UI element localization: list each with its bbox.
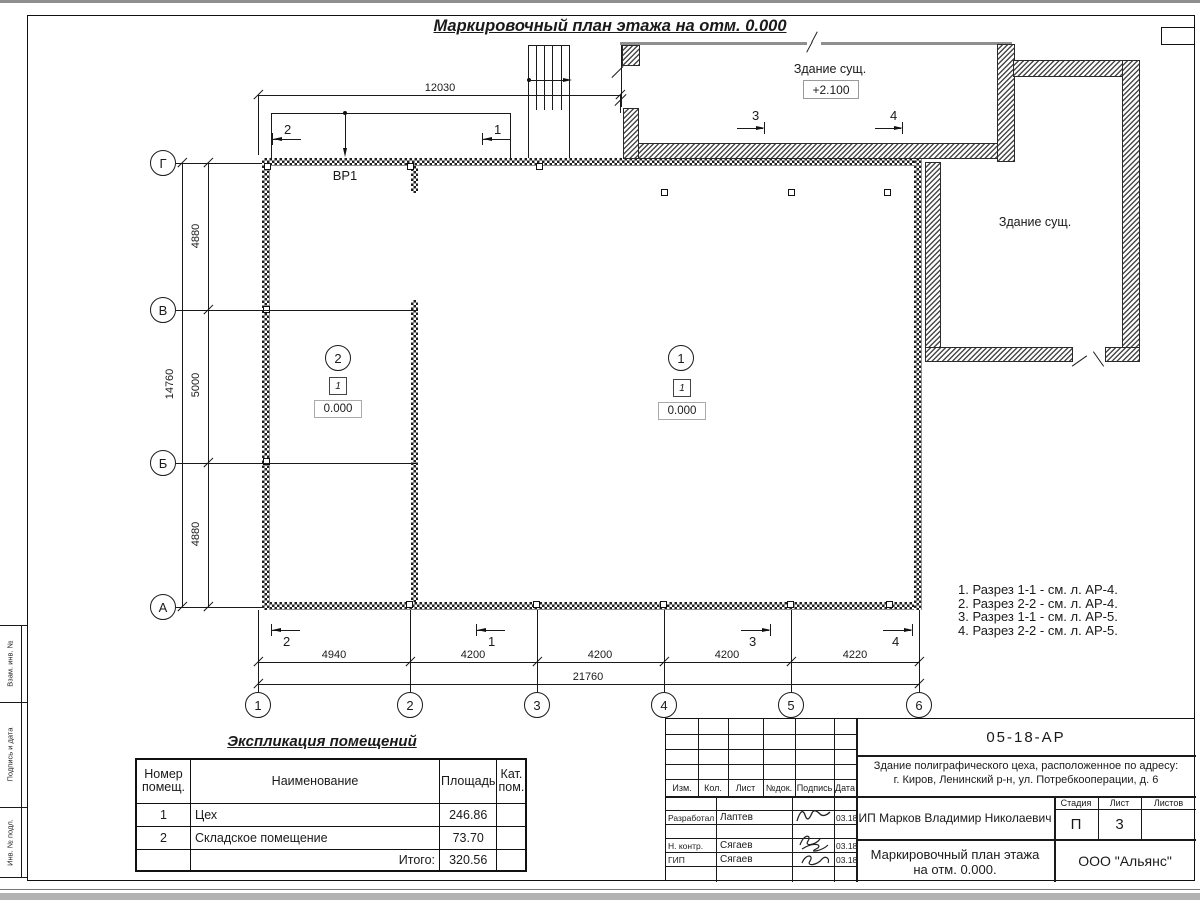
note-line: 1. Разрез 1-1 - см. л. АР-4. (958, 583, 1118, 597)
existing-wall (1105, 347, 1140, 362)
existing-wall (925, 162, 941, 362)
dim-bottom-2: 4200 (443, 649, 503, 661)
cell-empty (497, 849, 527, 871)
tb-object: Здание полиграфического цеха, расположен… (862, 760, 1190, 772)
cell-area: 246.86 (440, 803, 497, 826)
tb-sheets-label: Листов (1141, 796, 1196, 809)
dim-bottom-1: 4940 (304, 649, 364, 661)
cell-num: 1 (136, 803, 191, 826)
axis-line (919, 610, 920, 692)
tb-sheet-title-1: Маркировочный план этажа (862, 847, 1048, 862)
side-stamp-line (0, 625, 27, 626)
cell-num: 2 (136, 826, 191, 849)
room-2-number: 2 (334, 351, 341, 366)
col-header-area: Площадь (440, 759, 497, 803)
side-stamp-line (0, 807, 27, 808)
tb-name-gip: Сягаев (720, 854, 753, 865)
stair-line (528, 45, 570, 46)
section-mark-3-label: 3 (752, 108, 759, 123)
stair-tread (561, 45, 562, 110)
cell-name: Складское помещение (191, 826, 440, 849)
tb-role-ncontrol: Н. контр. (668, 841, 703, 851)
axis-label: Г (159, 156, 166, 171)
tb-stage-label: Стадия (1054, 796, 1098, 809)
axis-circle-3: 3 (524, 692, 550, 718)
witness-line (620, 95, 621, 113)
tb-line (666, 764, 856, 765)
section-mark-3-tick (764, 122, 765, 134)
axis-circle-b: Б (150, 450, 176, 476)
axis-line (410, 610, 411, 692)
stair-arrow-line (529, 80, 565, 81)
tb-address: г. Киров, Ленинский р-н, ул. Потребкоопе… (862, 774, 1190, 786)
section-mark-2b-label: 2 (283, 634, 290, 649)
explication-title: Экспликация помещений (222, 733, 422, 750)
section-mark-4b-tick (912, 624, 913, 636)
column (884, 189, 891, 196)
room-2-category: 1 (329, 377, 347, 395)
note-line: 4. Разрез 2-2 - см. л. АР-5. (958, 624, 1118, 638)
tb-col-sign: Подпись (795, 779, 834, 796)
side-stamp-label: Инв. № подл. (6, 811, 15, 875)
existing-wall (925, 347, 1073, 362)
existing-pier (622, 45, 640, 66)
section-mark-4b-label: 4 (892, 634, 899, 649)
vr1-arrow-line (345, 114, 346, 148)
dim-left-1: 4880 (190, 206, 202, 266)
canopy-line (510, 113, 511, 158)
column (406, 601, 413, 608)
tb-date-gip: 03.18 (836, 855, 857, 865)
axis-circle-a: А (150, 594, 176, 620)
axis-label: В (159, 303, 168, 318)
axis-label: 3 (533, 698, 540, 713)
wall-left (262, 158, 270, 610)
tb-name-ncontrol: Сягаев (720, 840, 753, 851)
axis-line (791, 610, 792, 692)
column (660, 601, 667, 608)
axis-label: 5 (787, 698, 794, 713)
column (407, 163, 414, 170)
existing-pier (623, 108, 639, 159)
axis-circle-4: 4 (651, 692, 677, 718)
axis-circle-v: В (150, 297, 176, 323)
witness-line (258, 95, 259, 155)
total-value: 320.56 (440, 849, 497, 871)
section-mark-2b-tick (271, 624, 272, 636)
tb-company: ООО "Альянс" (1054, 839, 1196, 882)
dim-line-bottom-total (258, 684, 919, 685)
column (661, 189, 668, 196)
vr1-arrowhead (343, 148, 347, 157)
section-mark-1b-arrow (477, 628, 486, 632)
axis-label: А (159, 600, 168, 615)
axis-circle-g: Г (150, 150, 176, 176)
drawing-sheet: Взам. инв. № Подпись и дата Инв. № подл.… (0, 0, 1200, 900)
room-2-elevation: 0.000 (314, 400, 362, 418)
section-mark-2-tick (272, 133, 273, 145)
tb-line (856, 755, 1196, 757)
axis-circle-2: 2 (397, 692, 423, 718)
cell-empty (136, 849, 191, 871)
room-1-category: 1 (673, 379, 691, 397)
sheet-bottom-line (0, 889, 1200, 890)
tb-line (792, 796, 793, 882)
tb-name-developer: Лаптев (720, 812, 753, 823)
section-mark-4-tick (902, 122, 903, 134)
axis-circle-6: 6 (906, 692, 932, 718)
section-mark-4-label: 4 (890, 108, 897, 123)
wall-bottom (262, 602, 922, 610)
stair-wall (528, 45, 529, 158)
side-stamp-label: Подпись и дата (6, 720, 15, 790)
tb-doc-number: 05-18-АР (856, 719, 1196, 755)
tb-line (666, 734, 856, 735)
column (536, 163, 543, 170)
sheet-top-edge (0, 0, 1200, 3)
tb-stage-value: П (1054, 809, 1098, 839)
axis-circle-5: 5 (778, 692, 804, 718)
tb-col-doc: №док. (763, 779, 795, 796)
section-mark-3b-label: 3 (749, 634, 756, 649)
side-stamp-line (0, 702, 27, 703)
axis-line (176, 607, 262, 608)
tb-col-list: Лист (728, 779, 763, 796)
dim-left-2: 5000 (190, 355, 202, 415)
dim-line-top (258, 95, 620, 96)
stair-tread (544, 45, 545, 110)
tb-col-izm: Изм. (666, 779, 698, 796)
tb-sheets-value (1141, 809, 1196, 839)
tb-line (666, 749, 856, 750)
column (533, 601, 540, 608)
axis-label: Б (159, 456, 168, 471)
section-mark-1-arrow (483, 137, 492, 141)
tb-client: ИП Марков Владимир Николаевич (856, 796, 1054, 839)
axis-label: 4 (660, 698, 667, 713)
room-marker-1: 1 (668, 345, 694, 371)
section-mark-2b-arrow (272, 628, 281, 632)
axis-label: 2 (406, 698, 413, 713)
column (886, 601, 893, 608)
axis-line (258, 610, 259, 692)
dim-bottom-5: 4220 (825, 649, 885, 661)
existing-top-elevation: +2.100 (803, 80, 859, 99)
existing-wall (1013, 60, 1140, 77)
total-label: Итого: (191, 849, 440, 871)
section-mark-1b-tick (476, 624, 477, 636)
section-mark-2-arrow (273, 137, 282, 141)
note-line: 2. Разрез 2-2 - см. л. АР-4. (958, 597, 1118, 611)
dim-line-bottom (258, 662, 919, 663)
note-line: 3. Разрез 1-1 - см. л. АР-5. (958, 610, 1118, 624)
side-stamp-line (0, 877, 27, 878)
tb-col-kol: Кол. (698, 779, 728, 796)
wall-right (914, 158, 922, 610)
dim-left-total: 14760 (164, 354, 176, 414)
dim-left-3: 4880 (190, 504, 202, 564)
axis-line (176, 310, 418, 311)
section-mark-2-label: 2 (284, 122, 291, 137)
section-mark-1-tick (482, 133, 483, 145)
dim-top: 12030 (410, 82, 470, 94)
tb-date-developer: 03.18 (836, 813, 857, 823)
section-mark-3b-tick (770, 624, 771, 636)
cell-cat (497, 826, 527, 849)
tb-line (716, 796, 717, 882)
col-header-num: Номер помещ. (136, 759, 191, 803)
axis-label: 6 (915, 698, 922, 713)
room-marker-2: 2 (325, 345, 351, 371)
existing-right-label: Здание сущ. (980, 215, 1090, 229)
tb-col-date: Дата (834, 779, 856, 796)
col-header-name: Наименование (191, 759, 440, 803)
dim-bottom-total: 21760 (558, 671, 618, 683)
room-1-number: 1 (677, 351, 684, 366)
tb-sheet-label: Лист (1098, 796, 1141, 809)
tb-date-ncontrol: 03.18 (836, 841, 857, 851)
signature-developer (794, 805, 832, 827)
partition-stub (411, 166, 418, 193)
axis-line (537, 610, 538, 692)
dim-bottom-4: 4200 (697, 649, 757, 661)
vr1-label: ВР1 (315, 168, 375, 183)
side-stamp-divider (21, 625, 22, 877)
cell-name: Цех (191, 803, 440, 826)
axis-line (176, 463, 418, 464)
side-stamp-label: Взам. инв. № (6, 634, 15, 694)
tb-sheet-title-2: на отм. 0.000. (862, 862, 1048, 877)
dim-line-left-total (182, 163, 183, 607)
stair-wall (569, 45, 570, 158)
cell-cat (497, 803, 527, 826)
dim-line-left (208, 163, 209, 607)
column (264, 163, 271, 170)
sheet-bottom-edge (0, 893, 1200, 900)
col-header-cat: Кат. пом. (497, 759, 527, 803)
explication-table: Номер помещ. Наименование Площадь Кат. п… (135, 758, 527, 872)
dim-bottom-3: 4200 (570, 649, 630, 661)
canopy-line (271, 113, 511, 114)
existing-top-label: Здание сущ. (770, 62, 890, 76)
existing-wall (1122, 60, 1140, 348)
section-notes: 1. Разрез 1-1 - см. л. АР-4. 2. Разрез 2… (958, 583, 1118, 637)
stair-tread (552, 45, 553, 110)
column (787, 601, 794, 608)
format-box (1161, 27, 1195, 45)
tb-role-developer: Разработал (668, 813, 714, 823)
signature-ncontrol-gip (794, 831, 834, 871)
section-mark-1b-label: 1 (488, 634, 495, 649)
plan-title: Маркировочный план этажа на отм. 0.000 (420, 17, 800, 36)
title-block: Изм. Кол. Лист №док. Подпись Дата Разраб… (665, 718, 1195, 881)
section-mark-1-label: 1 (494, 122, 501, 137)
stair-arrowhead (563, 78, 572, 82)
tb-sheet-value: 3 (1098, 809, 1141, 839)
partition-wall (411, 300, 418, 602)
existing-wall (638, 143, 1012, 159)
cell-area: 73.70 (440, 826, 497, 849)
wall-top (262, 158, 922, 166)
axis-label: 1 (254, 698, 261, 713)
axis-line (664, 610, 665, 692)
room-1-elevation: 0.000 (658, 402, 706, 420)
tb-line (834, 796, 835, 882)
axis-circle-1: 1 (245, 692, 271, 718)
column (788, 189, 795, 196)
tb-role-gip: ГИП (668, 855, 685, 865)
axis-line (176, 163, 262, 164)
stair-tread (536, 45, 537, 110)
